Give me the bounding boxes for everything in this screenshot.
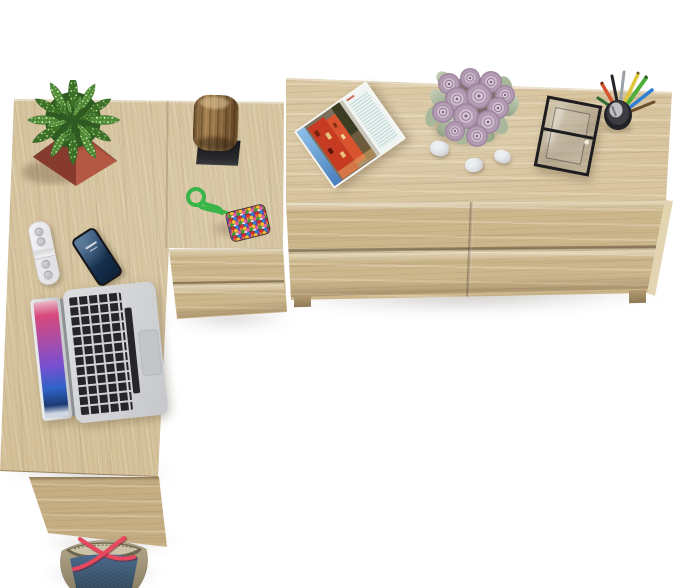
remote-button-3 [41,259,52,270]
laptop-trackpad [138,329,163,377]
laptop-deck [62,281,168,424]
pencil-cup-drawing [590,68,662,136]
remote-band [33,247,54,260]
laptop [27,279,171,430]
bead-pouch [225,204,271,243]
bead-keychain [178,183,278,249]
keychain-cord [188,189,234,217]
tote-bag [50,527,156,588]
remote-button-1 [34,227,45,238]
scene-photo [0,0,700,588]
corner-drawer-bevel-bottom [171,284,284,293]
keychain-drawing [178,183,278,249]
cactus-plant [14,80,126,192]
sideboard-foot-right [629,290,646,304]
glass-knob [584,139,590,145]
remote-button-4 [43,270,54,281]
remote-button-2 [36,237,47,248]
laptop-keyboard [69,292,133,415]
stump-log [192,94,239,152]
corner-drawer-bevel-top [169,248,283,257]
pencil-cup [590,68,662,136]
desk-corner-seam [165,101,168,248]
cactus-drawing [14,80,126,192]
wood-stump [189,93,248,169]
phone-lock-subtext [90,246,98,252]
tote-bag-drawing [50,527,156,588]
sideboard-foot-left [294,296,311,308]
